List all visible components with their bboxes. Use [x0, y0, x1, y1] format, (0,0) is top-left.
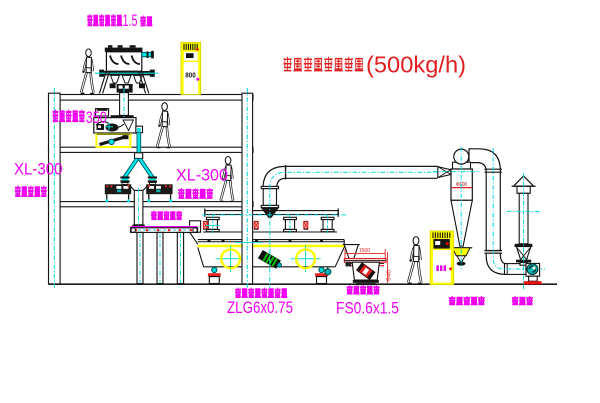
svg-text:ZLG6x0.75: ZLG6x0.75 — [227, 299, 293, 317]
svg-text:800: 800 — [185, 71, 196, 80]
svg-text:1.5: 1.5 — [123, 11, 138, 30]
svg-text:XL-300: XL-300 — [176, 166, 228, 185]
svg-text:XL-300: XL-300 — [14, 161, 63, 179]
svg-text:(500kg/h): (500kg/h) — [366, 52, 466, 78]
svg-text:540: 540 — [387, 270, 393, 281]
svg-text:1500: 1500 — [359, 248, 370, 254]
svg-text:350: 350 — [86, 108, 107, 127]
svg-text:FS0.6x1.5: FS0.6x1.5 — [336, 299, 399, 318]
